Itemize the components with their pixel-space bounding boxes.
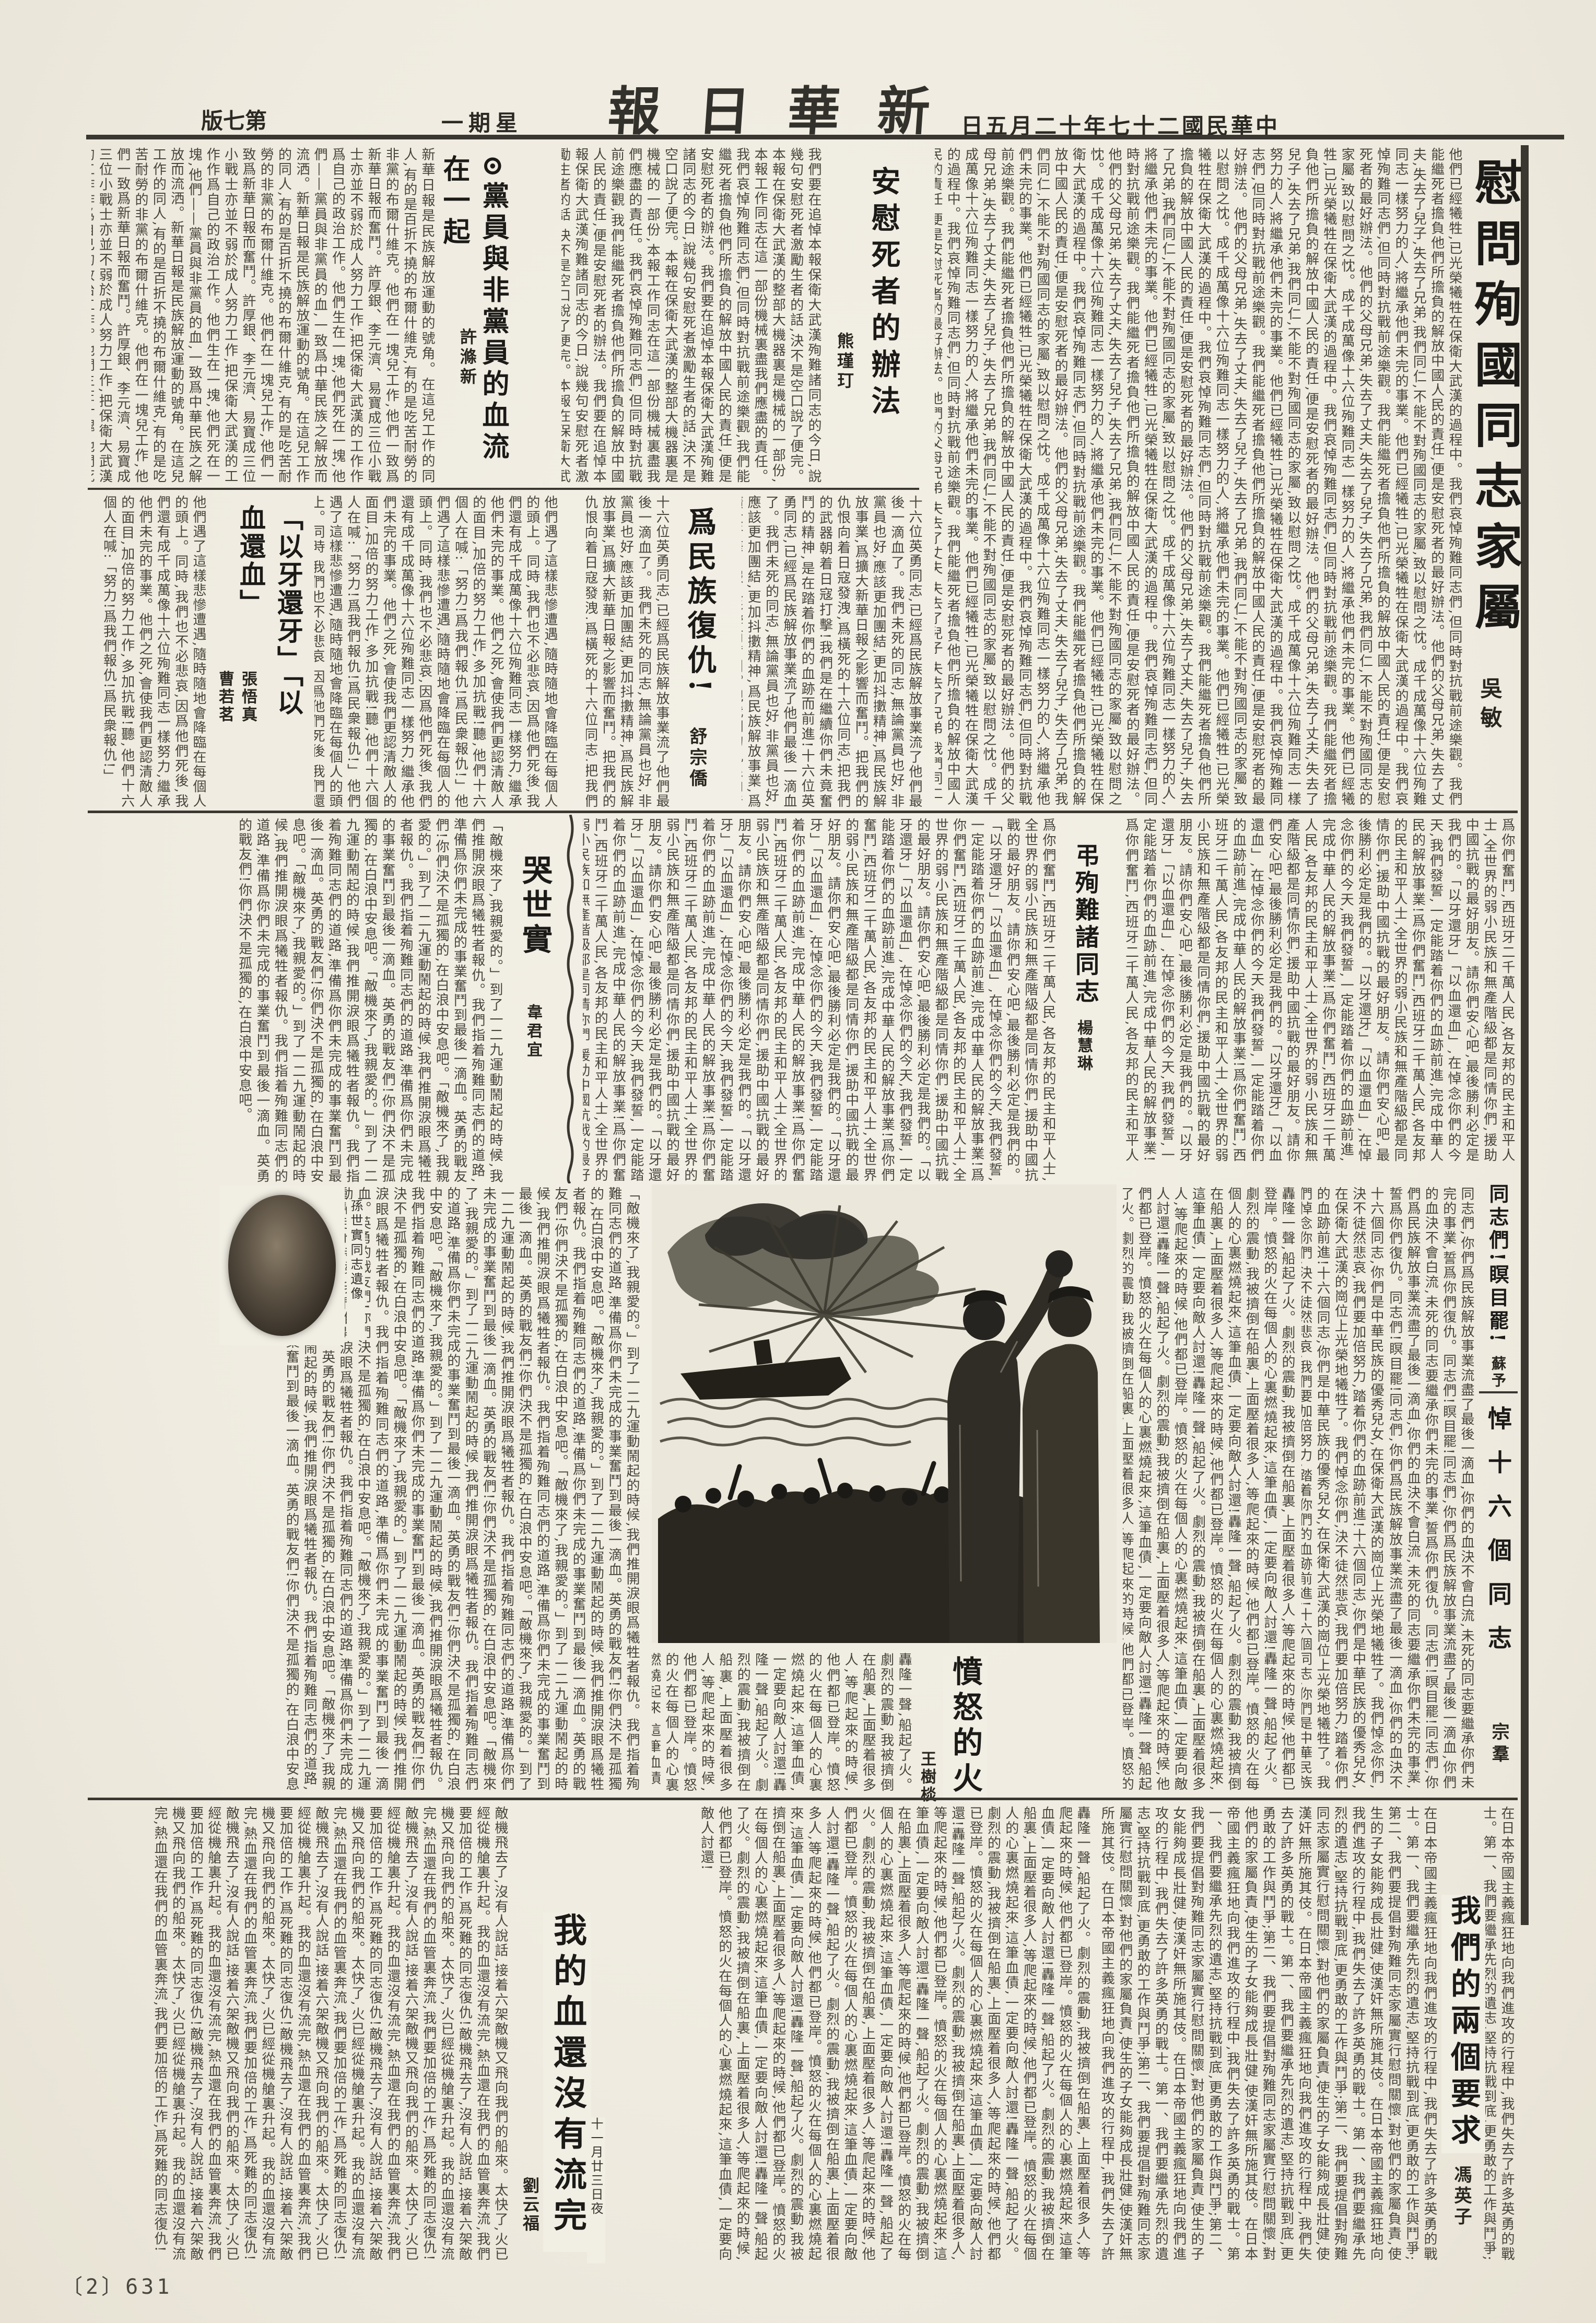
bottom-band-divider (88, 1798, 1518, 1800)
headline-dangyuan: ⊙黨員與非黨員的血流在一起 (444, 155, 513, 478)
article-body-kushi-cont: 「敵機來了,我親愛的。」到了一二九運動鬧起的時候,我們推開淚眼爲犧牲者報仇。我們… (91, 1187, 641, 1791)
dateline-wodexue: 十一月廿三日夜 (587, 2117, 605, 2263)
author-diaoxun: 楊慧琳 (1072, 1019, 1095, 1073)
author-fennu: 王樹棪 (915, 1751, 938, 1804)
author-dangyuan: 許滌新 (455, 328, 479, 388)
portrait-caption: 孫世實同志遺像 (347, 1199, 365, 1340)
masthead-rule (86, 135, 1564, 139)
newspaper-page: 版七第 一期星 報日華新 日五月二十年七十二國民華中 慰問殉國同志家屬 吳敏 他… (0, 0, 1596, 2323)
author-liangge: 馮英子 (1449, 2165, 1474, 2228)
band-divider (88, 811, 1518, 813)
author-tongzhimen: 蘇予 (1487, 1356, 1508, 1389)
headline-tongzhimen: 同志們!瞑目罷! (1483, 1183, 1512, 1371)
article-body-fennu: 轟隆一聲,船起了火。劇烈的震動,我被擠倒在船裏,上面壓着很多人,等爬起來的時候,… (652, 1652, 913, 1792)
article-body-kushi: 「敵機來了,我親愛的。」到了一二九運動鬧起的時候,我們推開淚眼爲犧牲者報仇。我們… (91, 818, 504, 1183)
authors-yiya: 張悟真曹若茗 (214, 671, 259, 730)
headline-kushi: 哭世實 (513, 854, 557, 964)
author-fuchou: 舒宗僑 (684, 727, 710, 790)
headline-wodexue: 我的血還沒有流完 (543, 1913, 591, 2252)
headline-fuchou: 爲民族復仇! (679, 507, 721, 715)
article-body-fuchou: 十六位英勇同志,已經爲民族解放事業流了他們最後一滴血了。我們未死的同志,無論黨員… (742, 495, 923, 808)
article-body-fennu-cont: 轟隆一聲,船起了火。劇烈的震動,我被擠倒在船裏,上面壓着很多人,等爬起來的時候,… (608, 1806, 1092, 2261)
headline-fennu: 憤怒的火 (943, 1656, 987, 1802)
author-wodexue: 劉云福 (518, 2177, 542, 2233)
wavy-divider (565, 815, 576, 1183)
portrait-photo (219, 1186, 345, 1345)
section-divider (88, 488, 919, 490)
article-body-yiya: 他們遇了這樣悲慘遭遇,隨時隨地會降臨在每個人的頭上。同時,我們也不必悲哀,因爲他… (314, 495, 559, 808)
article-body-dao16: 十六個同志,你們是中華民族的優秀兒女,在保衛大武漢的崗位上光榮地犧牲了。我們悼念… (1301, 1187, 1385, 1790)
author-kushi: 韋君宜 (521, 1004, 544, 1060)
headline-weiwen: 慰問殉國同志家屬 (1460, 158, 1530, 670)
article-body-anwei: 我們要在追悼本報保衛大武漢殉難諸同志的今日,說幾句安慰死者激勵生者的話,決不是空… (561, 147, 823, 484)
article-body-fennu-right: 轟隆一聲,船起了火。劇烈的震動,我被擠倒在船裏,上面壓着很多人,等爬起來的時候,… (1123, 1187, 1296, 1791)
article-body-fuchou-cont: 十六位英勇同志,已經爲民族解放事業流了他們最後一滴血了。我們未死的同志,無論黨員… (586, 495, 671, 808)
headline-dao16: 悼十六個同志 (1481, 1406, 1516, 1683)
headline-separator (1479, 1391, 1518, 1393)
author-anwei: 熊瑾玎 (832, 332, 856, 392)
article-body-diaoxun-right: 爲你們奮鬥,西班牙二千萬人民,各友邦的民主和平人士,全世界的弱小民族和無產階級都… (1125, 818, 1516, 1163)
weekday-label: 一期星 (441, 105, 523, 137)
portrait-oval (228, 1195, 336, 1336)
author-weiwen: 吳敏 (1474, 677, 1506, 735)
page-number: 〔2〕631 (62, 2270, 172, 2300)
newspaper-title: 報日華新 (606, 69, 970, 145)
article-body-liangge: 在日本帝國主義瘋狂地向我們進攻的行程中,我們失去了許多英勇的戰士。第一、我們要繼… (1099, 1806, 1438, 2261)
article-body-wodexue: 敵機飛去了,沒有人說話,接着六架敵機又飛向我們的船來。太快了,火已經從機艙裏升起… (91, 1806, 509, 2261)
memorial-woodcut-illustration (652, 1184, 1117, 1643)
headline-liangge: 我們的兩個要求 (1441, 1895, 1485, 2153)
edition-label: 版七第 (201, 103, 267, 135)
article-body-weiwen: 他們已經犧牲,已光榮犧牲在保衛大武漢的過程中。我們哀悼殉難同志們,但同時對抗戰前… (935, 147, 1463, 806)
article-body-diaoxun-left: 爲你們奮鬥,西班牙二千萬人民,各友邦的民主和平人士,全世界的弱小民族和無產階級都… (583, 818, 1057, 1182)
article-body-dangyuan: 新華日報是民族解放運動的號角。在這兒工作的同人,有的是百折不撓的布爾什維克,有的… (91, 147, 436, 484)
article-body-tongzhimen: 同志們,你們爲民族解放事業流盡了最後一滴血,你們的血決不會白流,未死的同志要繼承… (1389, 1187, 1475, 1790)
article-body-yiya-cont: 他們遇了這樣悲慘遭遇,隨時隨地會降臨在每個人的頭上。同時,我們也不必悲哀,因爲他… (91, 495, 207, 808)
headline-diaoxun: 弔殉難諸同志 (1069, 843, 1103, 1010)
author-dao16: 宗羣 (1486, 1722, 1512, 1766)
headline-anwei: 安慰死者的辦法 (863, 166, 905, 448)
